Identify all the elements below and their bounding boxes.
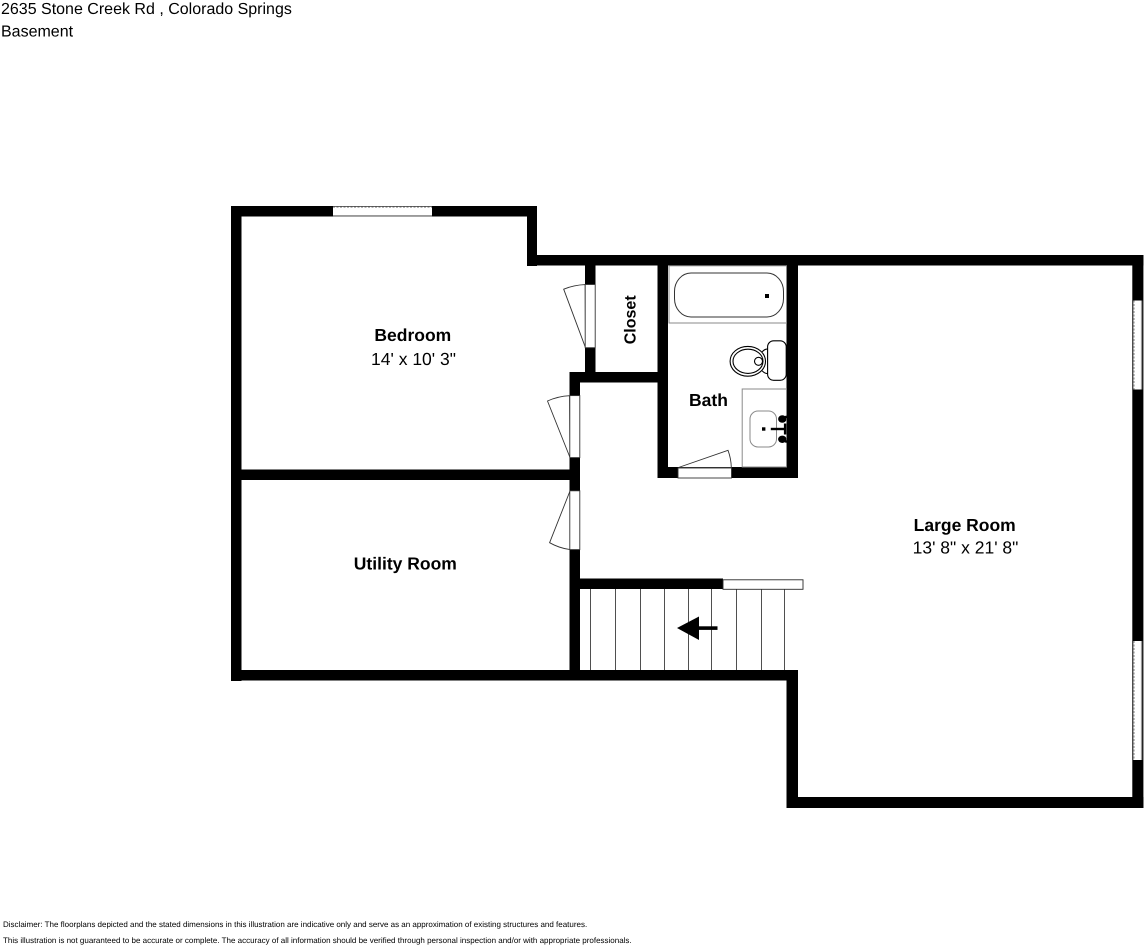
svg-text:Closet: Closet [623, 295, 640, 345]
svg-text:14' x 10' 3": 14' x 10' 3" [371, 349, 456, 369]
svg-text:2635 Stone Creek Rd , Colorado: 2635 Stone Creek Rd , Colorado Springs [1, 1, 292, 18]
svg-text:Bath: Bath [689, 390, 728, 410]
svg-text:Utility Room: Utility Room [354, 553, 457, 573]
svg-text:This illustration is not guara: This illustration is not guaranteed to b… [3, 936, 632, 945]
svg-text:Bedroom: Bedroom [374, 325, 451, 345]
svg-text:Basement: Basement [1, 24, 74, 41]
svg-text:Disclaimer: The floorplans dep: Disclaimer: The floorplans depicted and … [3, 920, 587, 929]
svg-text:Large Room: Large Room [914, 515, 1016, 535]
svg-text:13' 8" x 21' 8": 13' 8" x 21' 8" [913, 538, 1019, 558]
